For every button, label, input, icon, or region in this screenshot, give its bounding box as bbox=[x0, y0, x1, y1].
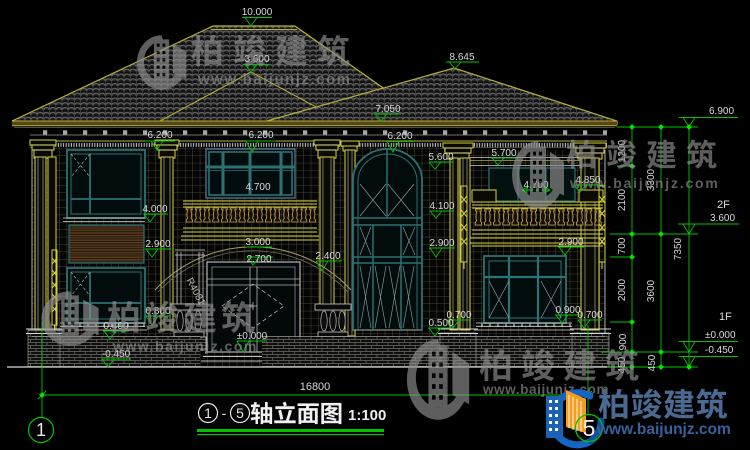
svg-text:5.600: 5.600 bbox=[428, 152, 453, 163]
svg-text:450: 450 bbox=[647, 354, 658, 371]
svg-text:1: 1 bbox=[36, 420, 46, 440]
svg-text:-: - bbox=[222, 405, 227, 421]
svg-text:1:100: 1:100 bbox=[348, 407, 386, 424]
svg-text:900: 900 bbox=[618, 333, 629, 350]
svg-text:5.700: 5.700 bbox=[491, 148, 516, 159]
svg-text:1: 1 bbox=[204, 405, 212, 421]
svg-text:6.200: 6.200 bbox=[248, 130, 273, 141]
svg-text:-0.450: -0.450 bbox=[705, 345, 734, 356]
svg-text:1F: 1F bbox=[719, 311, 732, 323]
svg-text:16800: 16800 bbox=[300, 381, 331, 393]
svg-text:3600: 3600 bbox=[646, 279, 657, 302]
svg-text:www.baijunjz.com: www.baijunjz.com bbox=[569, 175, 720, 191]
svg-text:www.baijunjz.com: www.baijunjz.com bbox=[112, 338, 258, 354]
svg-text:5: 5 bbox=[236, 405, 244, 421]
svg-text:4.100: 4.100 bbox=[429, 201, 454, 212]
svg-text:2.400: 2.400 bbox=[315, 251, 340, 262]
svg-text:2000: 2000 bbox=[617, 278, 628, 301]
svg-text:±0.000: ±0.000 bbox=[705, 330, 736, 341]
svg-text:6.900: 6.900 bbox=[709, 106, 734, 117]
svg-text:3.000: 3.000 bbox=[245, 237, 270, 248]
svg-text:7.050: 7.050 bbox=[375, 104, 400, 115]
svg-text:10.000: 10.000 bbox=[242, 7, 273, 18]
svg-text:0.500: 0.500 bbox=[428, 318, 453, 329]
svg-text:www.baijunjz.com: www.baijunjz.com bbox=[197, 71, 351, 88]
svg-text:6.200: 6.200 bbox=[147, 130, 172, 141]
svg-text:700: 700 bbox=[617, 237, 628, 254]
svg-text:2.900: 2.900 bbox=[145, 239, 170, 250]
svg-text:3.600: 3.600 bbox=[710, 213, 735, 224]
svg-text:7350: 7350 bbox=[673, 237, 684, 260]
svg-text:www.baijunjz.com: www.baijunjz.com bbox=[596, 421, 731, 438]
svg-text:4.700: 4.700 bbox=[245, 182, 270, 193]
svg-text:2F: 2F bbox=[717, 199, 730, 211]
svg-text:2.900: 2.900 bbox=[429, 238, 454, 249]
svg-text:6.200: 6.200 bbox=[387, 131, 412, 142]
svg-text:8.645: 8.645 bbox=[449, 52, 474, 63]
svg-text:2.900: 2.900 bbox=[558, 237, 583, 248]
svg-text:4.000: 4.000 bbox=[142, 204, 167, 215]
svg-text:2100: 2100 bbox=[617, 188, 628, 211]
svg-text:0.700: 0.700 bbox=[577, 310, 602, 321]
svg-text:5: 5 bbox=[583, 415, 596, 441]
svg-text:2.700: 2.700 bbox=[246, 254, 271, 265]
